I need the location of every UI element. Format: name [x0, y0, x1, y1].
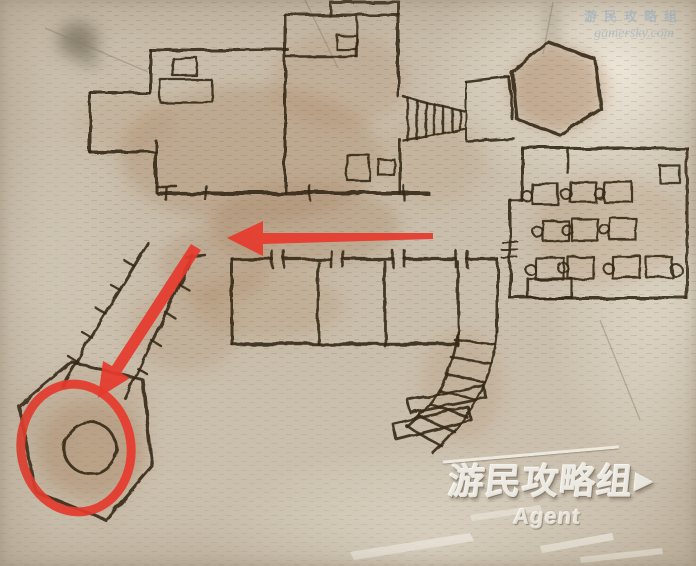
- floor-plan-svg: [0, 0, 696, 566]
- sketch-hatch-texture: [80, 0, 695, 360]
- parchment-map: 游民攻略组 gamersky.com 游民攻略组▶ Agent: [0, 0, 696, 566]
